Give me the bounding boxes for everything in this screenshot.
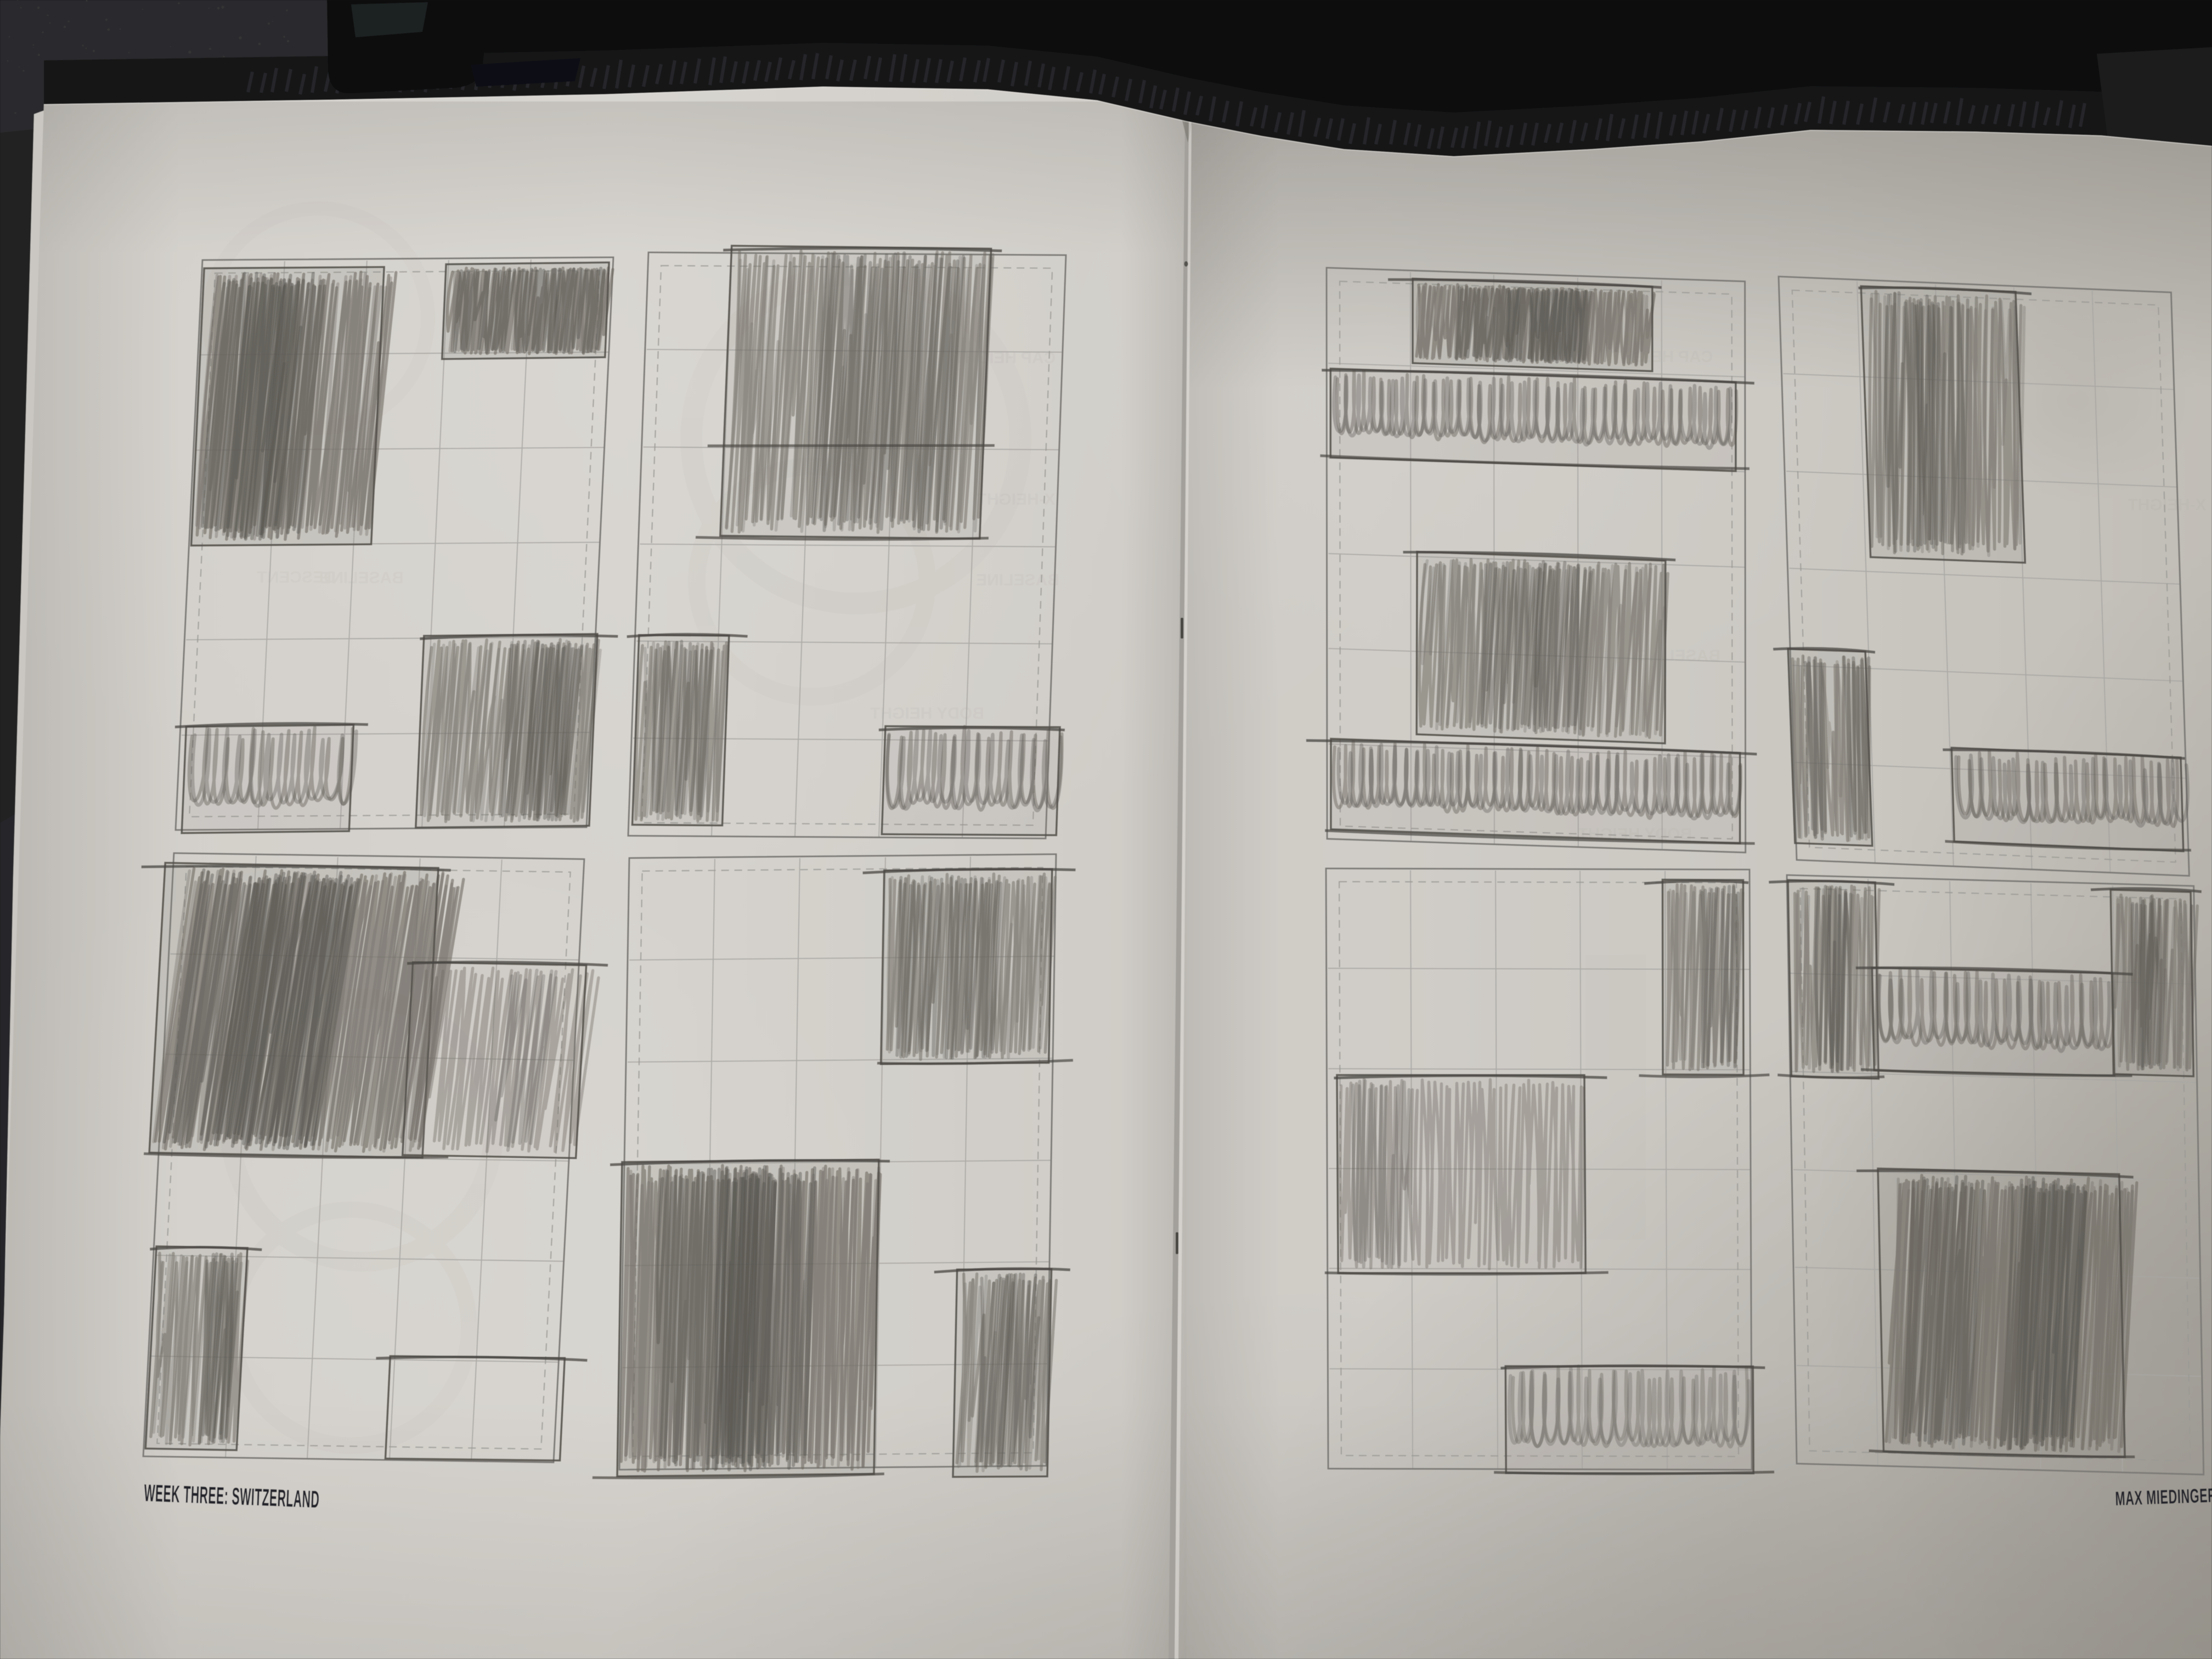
svg-text:X-HEIGHT: X-HEIGHT: [977, 490, 1055, 509]
svg-text:X-HEIGHT: X-HEIGHT: [2128, 496, 2206, 514]
svg-text:MAX MIEDINGER: MAX MIEDINGER: [2115, 1484, 2212, 1510]
svg-text:BASELINE: BASELINE: [976, 571, 1059, 589]
svg-text:DESCENT: DESCENT: [257, 568, 335, 586]
